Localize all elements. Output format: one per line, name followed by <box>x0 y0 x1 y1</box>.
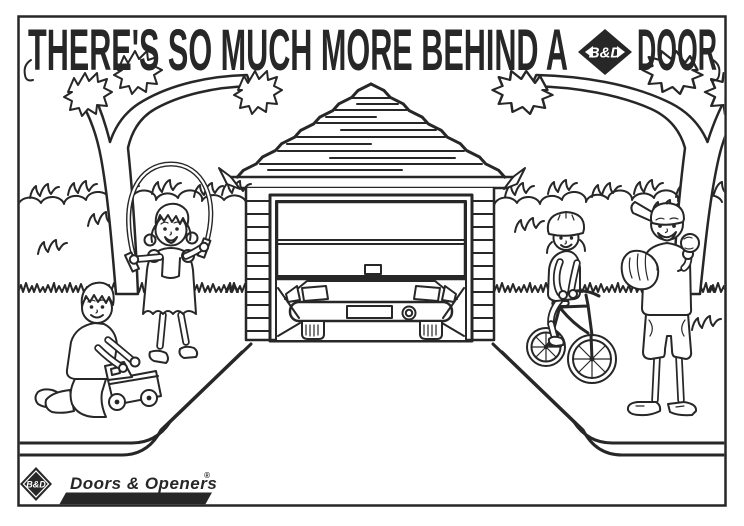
bike-kid-shoe <box>549 337 564 346</box>
door-handle <box>365 265 381 274</box>
pigtail-right <box>187 233 198 244</box>
car-tire-right <box>420 321 442 339</box>
footer-brand-text: Doors & Openers <box>70 474 217 493</box>
headline-part2: DOOR <box>637 18 717 83</box>
car-headlight-left <box>302 286 328 301</box>
coloring-page: B&D Doors & Openers ® THERE'S SO MUCH MO… <box>0 0 744 526</box>
girl-shoe-right <box>180 347 198 358</box>
footer-logo-text: B&D <box>26 480 46 490</box>
boy2-sneaker-left <box>628 402 660 415</box>
headline-part1: THERE'S SO MUCH MORE BEHIND A <box>28 18 568 83</box>
car-tire-left <box>302 321 324 339</box>
headline-logo-text: B&D <box>589 45 622 62</box>
car-headlight-right <box>414 286 440 301</box>
backwards-cap <box>651 203 684 225</box>
pigtail-left <box>145 235 156 246</box>
baseball-glove <box>622 251 659 290</box>
boy2-sneaker-right <box>668 402 696 415</box>
scene-canvas: B&D Doors & Openers ® THERE'S SO MUCH MO… <box>0 0 744 526</box>
footer-bar <box>59 493 212 506</box>
registered-mark: ® <box>204 471 210 480</box>
girl-shoe-left <box>150 351 169 363</box>
